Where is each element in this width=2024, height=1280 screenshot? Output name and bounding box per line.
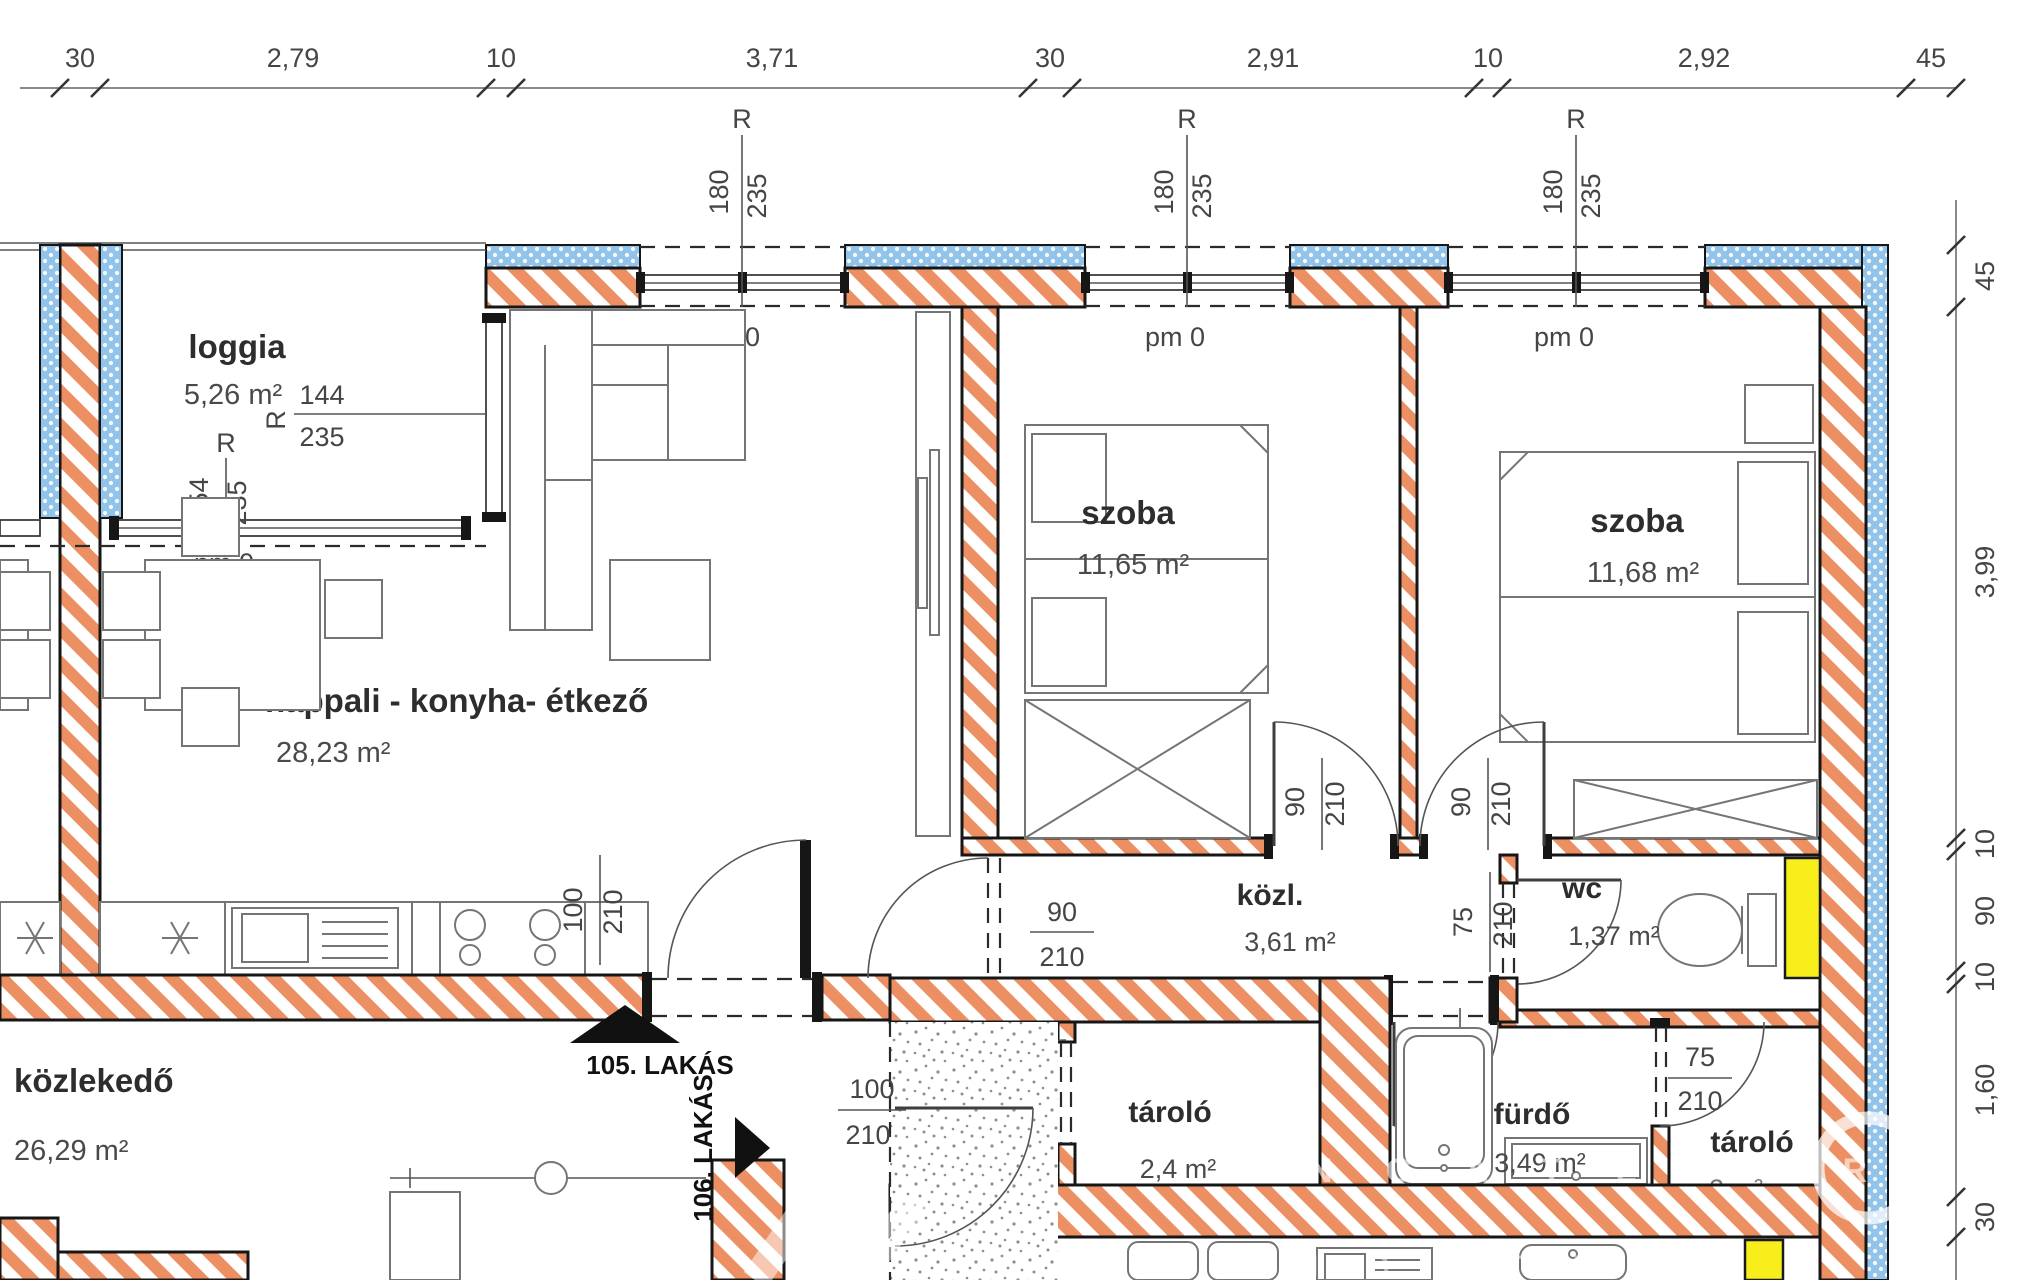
w1-height: 235 (742, 173, 772, 218)
floor-plan-page: 30 2,79 10 3,71 30 2,91 10 2,92 45 45 3,… (0, 0, 2024, 1280)
w2-height: 235 (1187, 173, 1217, 218)
door-tarolo2-w: 75 (1685, 1042, 1715, 1072)
room-szoba2: szoba 11,68 m² 90 210 (1420, 385, 1817, 850)
dim-top-7: 2,92 (1678, 43, 1731, 73)
dimension-chain-top: 30 2,79 10 3,71 30 2,91 10 2,92 45 (20, 43, 1965, 97)
door106-h: 210 (845, 1120, 890, 1150)
szoba2-area: 11,68 m² (1587, 557, 1700, 589)
dim-right-6: 30 (1970, 1202, 2000, 1232)
apartment-106-label: 106. LAKÁS (688, 1074, 718, 1221)
watermark-row2: I N G A T L A N (1240, 1250, 1748, 1280)
door-kozl-nappali: 90 210 (868, 858, 1094, 978)
wall-szoba1-szoba2 (1400, 307, 1417, 838)
furdo-name: fürdő (1494, 1098, 1571, 1131)
dim-right-3: 90 (1970, 896, 2000, 926)
door-szoba1-w: 90 (1280, 787, 1310, 817)
door106-w: 100 (849, 1074, 894, 1104)
dimension-chain-right: 45 3,99 10 90 10 1,60 30 (1947, 200, 2000, 1280)
dim-top-1: 2,79 (267, 43, 320, 73)
door-kozl-w: 90 (1047, 897, 1077, 927)
loggia-name: loggia (188, 328, 286, 365)
party-wall-left (60, 245, 100, 1020)
wardrobe-symbol-2 (1574, 780, 1817, 838)
door-szoba2-w: 90 (1446, 787, 1476, 817)
dim-right-1: 3,99 (1970, 546, 2000, 599)
door-kozl-h: 210 (1039, 942, 1084, 972)
szoba1-name: szoba (1081, 494, 1175, 531)
nappali-area: 28,23 m² (276, 737, 391, 769)
w3-width: 180 (1538, 169, 1568, 214)
door105-height: 210 (598, 889, 628, 934)
w1-r: R (732, 104, 752, 134)
toilet-symbol (1658, 894, 1776, 966)
kozlekedo-area: 26,29 m² (14, 1135, 129, 1167)
kozlekedo-name: közlekedő (14, 1062, 174, 1099)
dim-right-2: 10 (1970, 829, 2000, 859)
entry-stipple (890, 1022, 1058, 1280)
door-tarolo2-label: 75 210 (1668, 1042, 1732, 1116)
w2-r: R (1177, 104, 1197, 134)
floor-plan-drawing: 30 2,79 10 3,71 30 2,91 10 2,92 45 45 3,… (0, 0, 2024, 1280)
wardrobe-symbol (1025, 700, 1250, 838)
dim-top-0: 30 (65, 43, 95, 73)
dim-right-0: 45 (1970, 261, 2000, 291)
w254-r: R (216, 428, 236, 458)
entry-area-106: 100 210 105. LAKÁS 106. LAKÁS (390, 1005, 1058, 1280)
dim-top-6: 10 (1473, 43, 1503, 73)
door-wc-h: 210 (1488, 901, 1518, 946)
w3-pm0: pm 0 (1534, 322, 1594, 352)
dim-top-4: 30 (1035, 43, 1065, 73)
dim-top-2: 10 (486, 43, 516, 73)
wc-name: wc (1561, 872, 1602, 905)
window-label-w2: R 180 235 pm 0 (1145, 104, 1217, 352)
w3-height: 235 (1576, 173, 1606, 218)
shaft-yellow-2 (1745, 1240, 1783, 1280)
door-wc-w: 75 (1448, 907, 1478, 937)
shaft-yellow-1 (1785, 858, 1820, 978)
door-szoba1: 90 210 (1274, 722, 1398, 850)
door105-width: 100 (558, 887, 588, 932)
w144-height: 235 (299, 422, 344, 452)
dim-right-5: 1,60 (1970, 1064, 2000, 1117)
w1-width: 180 (704, 169, 734, 214)
double-bed-symbol-2 (1500, 452, 1815, 742)
wall-nappali-szoba1 (962, 307, 998, 838)
neighbour-dining-fragment (0, 560, 50, 710)
kozl-area: 3,61 m² (1244, 927, 1336, 957)
watermark-row1: I N G A T L A N R (1245, 1152, 1889, 1190)
nappali-name: nappali - konyha- étkező (265, 682, 648, 719)
window-label-w3: R 180 235 pm 0 (1534, 104, 1606, 352)
tv-cabinet-symbol (916, 312, 950, 836)
w2-pm0: pm 0 (1145, 322, 1205, 352)
dim-top-5: 2,91 (1247, 43, 1300, 73)
coffee-table-symbol (610, 560, 710, 660)
kitchen-sink-symbol (232, 908, 398, 968)
szoba1-area: 11,65 m² (1077, 549, 1190, 581)
wc-area: 1,37 m² (1568, 921, 1660, 951)
door-tarolo2-h: 210 (1677, 1086, 1722, 1116)
tarolo1-area: 2,4 m² (1140, 1154, 1217, 1184)
szoba2-name: szoba (1590, 502, 1684, 539)
dim-top-8: 45 (1916, 43, 1946, 73)
nightstand-symbol (1745, 385, 1813, 443)
dim-right-4: 10 (1970, 962, 2000, 992)
door-szoba2-h: 210 (1486, 781, 1516, 826)
w144-r: R (261, 410, 291, 430)
room-kozl: közl. 3,61 m² 90 210 (868, 858, 1336, 978)
w3-r: R (1566, 104, 1586, 134)
kozl-name: közl. (1237, 879, 1304, 912)
door-szoba1-h: 210 (1320, 781, 1350, 826)
w2-width: 180 (1149, 169, 1179, 214)
riser-symbol (390, 1162, 706, 1280)
room-kozlekedo: közlekedő 26,29 m² (14, 1062, 174, 1167)
room-szoba1: szoba 11,65 m² 90 210 (1025, 425, 1398, 850)
kitchen-and-south-wall: 100 210 (0, 840, 890, 1022)
tarolo1-name: tároló (1128, 1096, 1211, 1129)
dim-top-3: 3,71 (746, 43, 799, 73)
window-label-144: R 144 235 (261, 380, 486, 452)
loggia-area: 5,26 m² (184, 379, 283, 411)
room-nappali: nappali - konyha- étkező 28,23 m² (0, 310, 950, 836)
w144-width: 144 (299, 380, 344, 410)
